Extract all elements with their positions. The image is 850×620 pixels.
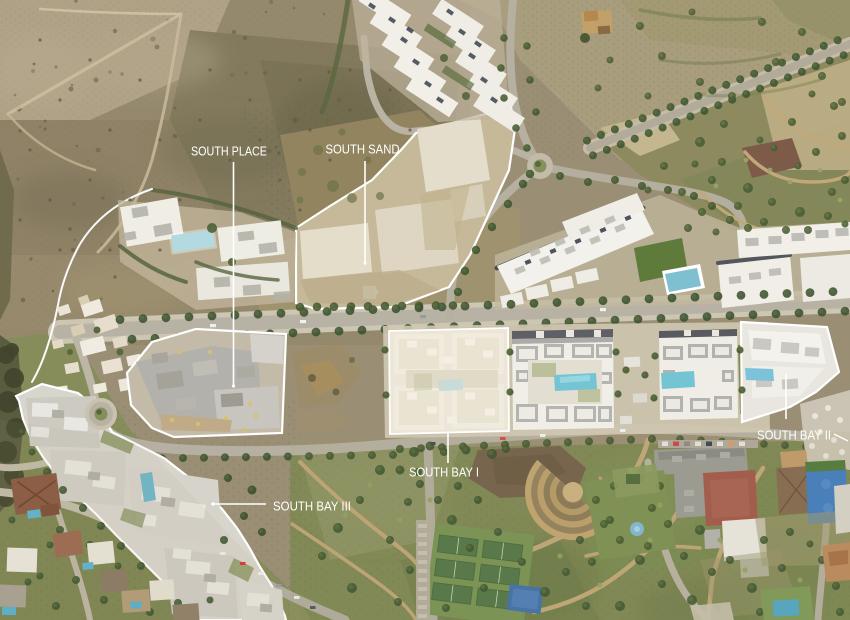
svg-text:SOUTH PLACE: SOUTH PLACE	[191, 144, 267, 159]
svg-text:SOUTH SAND: SOUTH SAND	[326, 142, 400, 157]
svg-text:SOUTH BAY III: SOUTH BAY III	[273, 499, 351, 514]
svg-text:SOUTH BAY I: SOUTH BAY I	[409, 465, 479, 480]
svg-text:SOUTH BAY II: SOUTH BAY II	[757, 428, 831, 443]
